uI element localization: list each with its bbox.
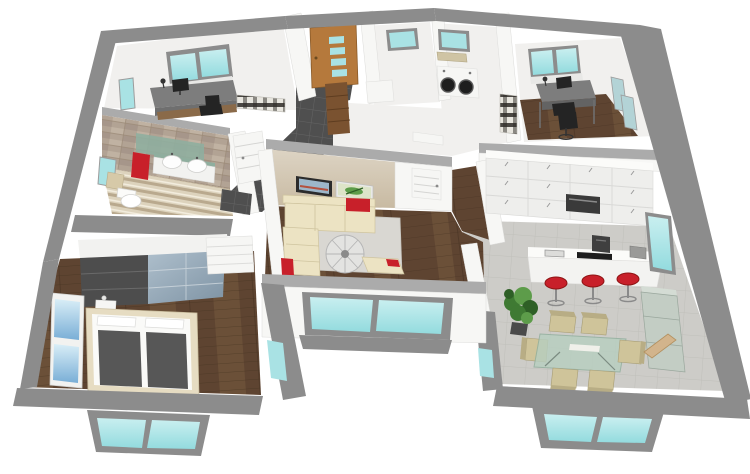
double-bed [86,308,199,396]
red-towel [131,152,150,180]
plaid-daybed [500,94,517,134]
dining-chair [549,310,576,333]
cabinet-wall [486,150,653,226]
dryer-door [459,80,473,94]
duvet [146,332,188,389]
door-glass-pane [332,69,347,77]
built-in-oven [566,194,600,214]
wc-window [386,28,419,51]
dining-chair [618,340,646,364]
washer-dryer [437,66,479,98]
monitor [556,76,572,89]
door-glass-pane [329,36,344,44]
door-glass-pane [331,58,346,66]
kitchen-side-window [645,212,676,275]
dining-chair [550,368,578,392]
sink-left [163,156,182,169]
chaise-lounge [362,257,404,274]
patio-window-pane [310,297,373,332]
bathroom-bottom-wall [71,215,233,236]
wardrobe-dark-doors [80,255,148,307]
small-appliance [630,246,646,259]
red-pillow [386,259,400,267]
front-door [310,24,358,88]
dining-chair [581,312,608,335]
red-cushion [281,258,294,276]
wc-fixture [366,80,394,103]
patio-window-pane-side [478,348,494,378]
roof-window [528,45,583,84]
floorplan-stage [0,0,750,474]
entry-cabinet [325,82,350,135]
patio-window-pane [376,300,444,334]
dresser [206,236,254,274]
bedroom-tall-window [50,293,84,388]
hall-door [412,168,441,200]
pillow [97,316,136,327]
dining-chair [587,370,615,394]
pillow [145,318,184,329]
door-handle [436,185,439,188]
laundry-window [438,29,470,52]
red-cushion [346,198,370,212]
island-sink [545,250,564,257]
laundry-mat [437,52,467,62]
door-handle [315,57,318,60]
floorplan-3d-render [0,0,750,474]
side-window [119,78,135,110]
dining-bay-window [532,406,664,452]
door-glass-pane [330,47,345,55]
spiral-staircase [326,235,364,273]
sink-right [188,160,207,173]
bedroom-bay-window [87,410,210,456]
patio-wall-with-window [262,274,486,354]
duvet [98,330,142,387]
bath-mat [106,172,124,190]
coffee-machine [592,235,610,253]
dining-table [534,334,626,372]
washer-door [441,78,455,92]
door-handle [242,157,245,160]
